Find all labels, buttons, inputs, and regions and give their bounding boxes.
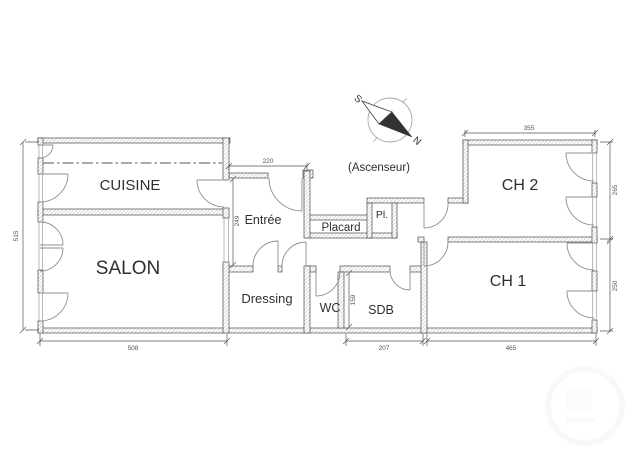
wall-kitchen-top: [38, 138, 230, 143]
dim-sdb-width: 207: [379, 345, 390, 352]
compass-north-label: N: [410, 135, 423, 148]
wall-salon-right: [223, 262, 229, 333]
dim-sdb-height: 159: [350, 294, 357, 305]
wall-ch2-top: [463, 140, 597, 145]
compass-rose: S N: [352, 93, 423, 148]
window-ch1-2: [567, 291, 594, 318]
window-cuisine-2: [40, 174, 68, 202]
door-entree-corridor: [282, 242, 306, 266]
floor-plan-page: 220 355 508 207 465 515 249 159 265 250 …: [0, 0, 640, 453]
salon-opening: [224, 218, 229, 262]
window-salon-double: [40, 222, 63, 271]
door-wc: [316, 272, 340, 296]
wall-left-outer-3: [38, 202, 43, 222]
door-apartment-entrance: [424, 204, 448, 228]
wall-kitchen-right-1: [223, 138, 229, 180]
window-ch2-1: [566, 153, 594, 181]
wall-bottom-outer: [38, 328, 597, 333]
wall-ch-divider-a: [418, 237, 424, 242]
room-label-ch1: CH 1: [490, 273, 527, 290]
dim-ch2-height: 265: [612, 184, 619, 195]
wall-pl-right: [392, 203, 397, 238]
window-cuisine-1: [40, 145, 53, 158]
dim-ch1-height: 250: [612, 280, 619, 291]
door-sdb: [390, 270, 410, 290]
window-salon-2: [40, 293, 68, 321]
dim-ch2-width: 355: [524, 125, 535, 132]
wall-placard-top: [307, 215, 368, 220]
wall-left-outer-5: [38, 321, 43, 333]
wall-left-outer-1: [38, 138, 43, 145]
dim-plan-height: 515: [13, 230, 20, 241]
room-label-pl: Pl.: [376, 209, 388, 221]
wall-right-outer-1: [592, 140, 597, 153]
room-label-placard: Placard: [322, 222, 361, 234]
wall-entree-right: [304, 171, 310, 238]
wall-pl-left: [367, 203, 372, 238]
room-label-wc: WC: [320, 301, 341, 315]
room-label-salon: SALON: [96, 258, 160, 279]
floor-plan-drawing: 220 355 508 207 465 515 249 159 265 250 …: [0, 0, 640, 453]
dim-salon-width: 508: [128, 345, 139, 352]
walls: [38, 138, 597, 333]
door-ch1: [424, 242, 448, 266]
dim-ch1-width: 465: [506, 345, 517, 352]
room-label-dressing: Dressing: [241, 291, 292, 306]
compass-south-label: S: [352, 93, 364, 106]
door-entree-main: [269, 178, 302, 211]
wall-corridor-top-a: [367, 198, 424, 203]
wall-right-outer-3: [592, 227, 597, 243]
wall-entree-bottom-stub: [278, 266, 282, 272]
watermark: [548, 369, 622, 443]
wall-ch2-left: [463, 140, 468, 203]
dim-entree-height: 249: [234, 215, 241, 226]
wall-right-outer-4: [592, 271, 597, 291]
room-label-cuisine: CUISINE: [100, 177, 161, 194]
window-ch2-2: [566, 197, 594, 225]
wall-left-outer-4: [38, 270, 43, 293]
label-ascenseur: (Ascenseur): [348, 162, 410, 174]
wall-right-outer-5: [592, 320, 597, 333]
window-ch1-1: [567, 243, 594, 270]
wall-kitchen-right-2: [223, 208, 229, 218]
wall-right-outer-2: [592, 183, 597, 197]
wall-ch-divider-b: [448, 237, 597, 242]
room-label-sdb: SDB: [368, 303, 394, 317]
wall-corridor-bottom-b: [340, 266, 390, 272]
wall-kitchen-salon-divider: [38, 209, 228, 215]
room-label-ch2: CH 2: [502, 177, 539, 194]
door-cuisine: [197, 180, 224, 207]
door-entree-dressing: [253, 241, 278, 266]
wall-wc-left: [304, 266, 310, 333]
room-label-entree: Entrée: [245, 213, 282, 227]
dim-entree-width: 220: [263, 158, 274, 165]
wall-left-outer-2: [38, 158, 43, 174]
